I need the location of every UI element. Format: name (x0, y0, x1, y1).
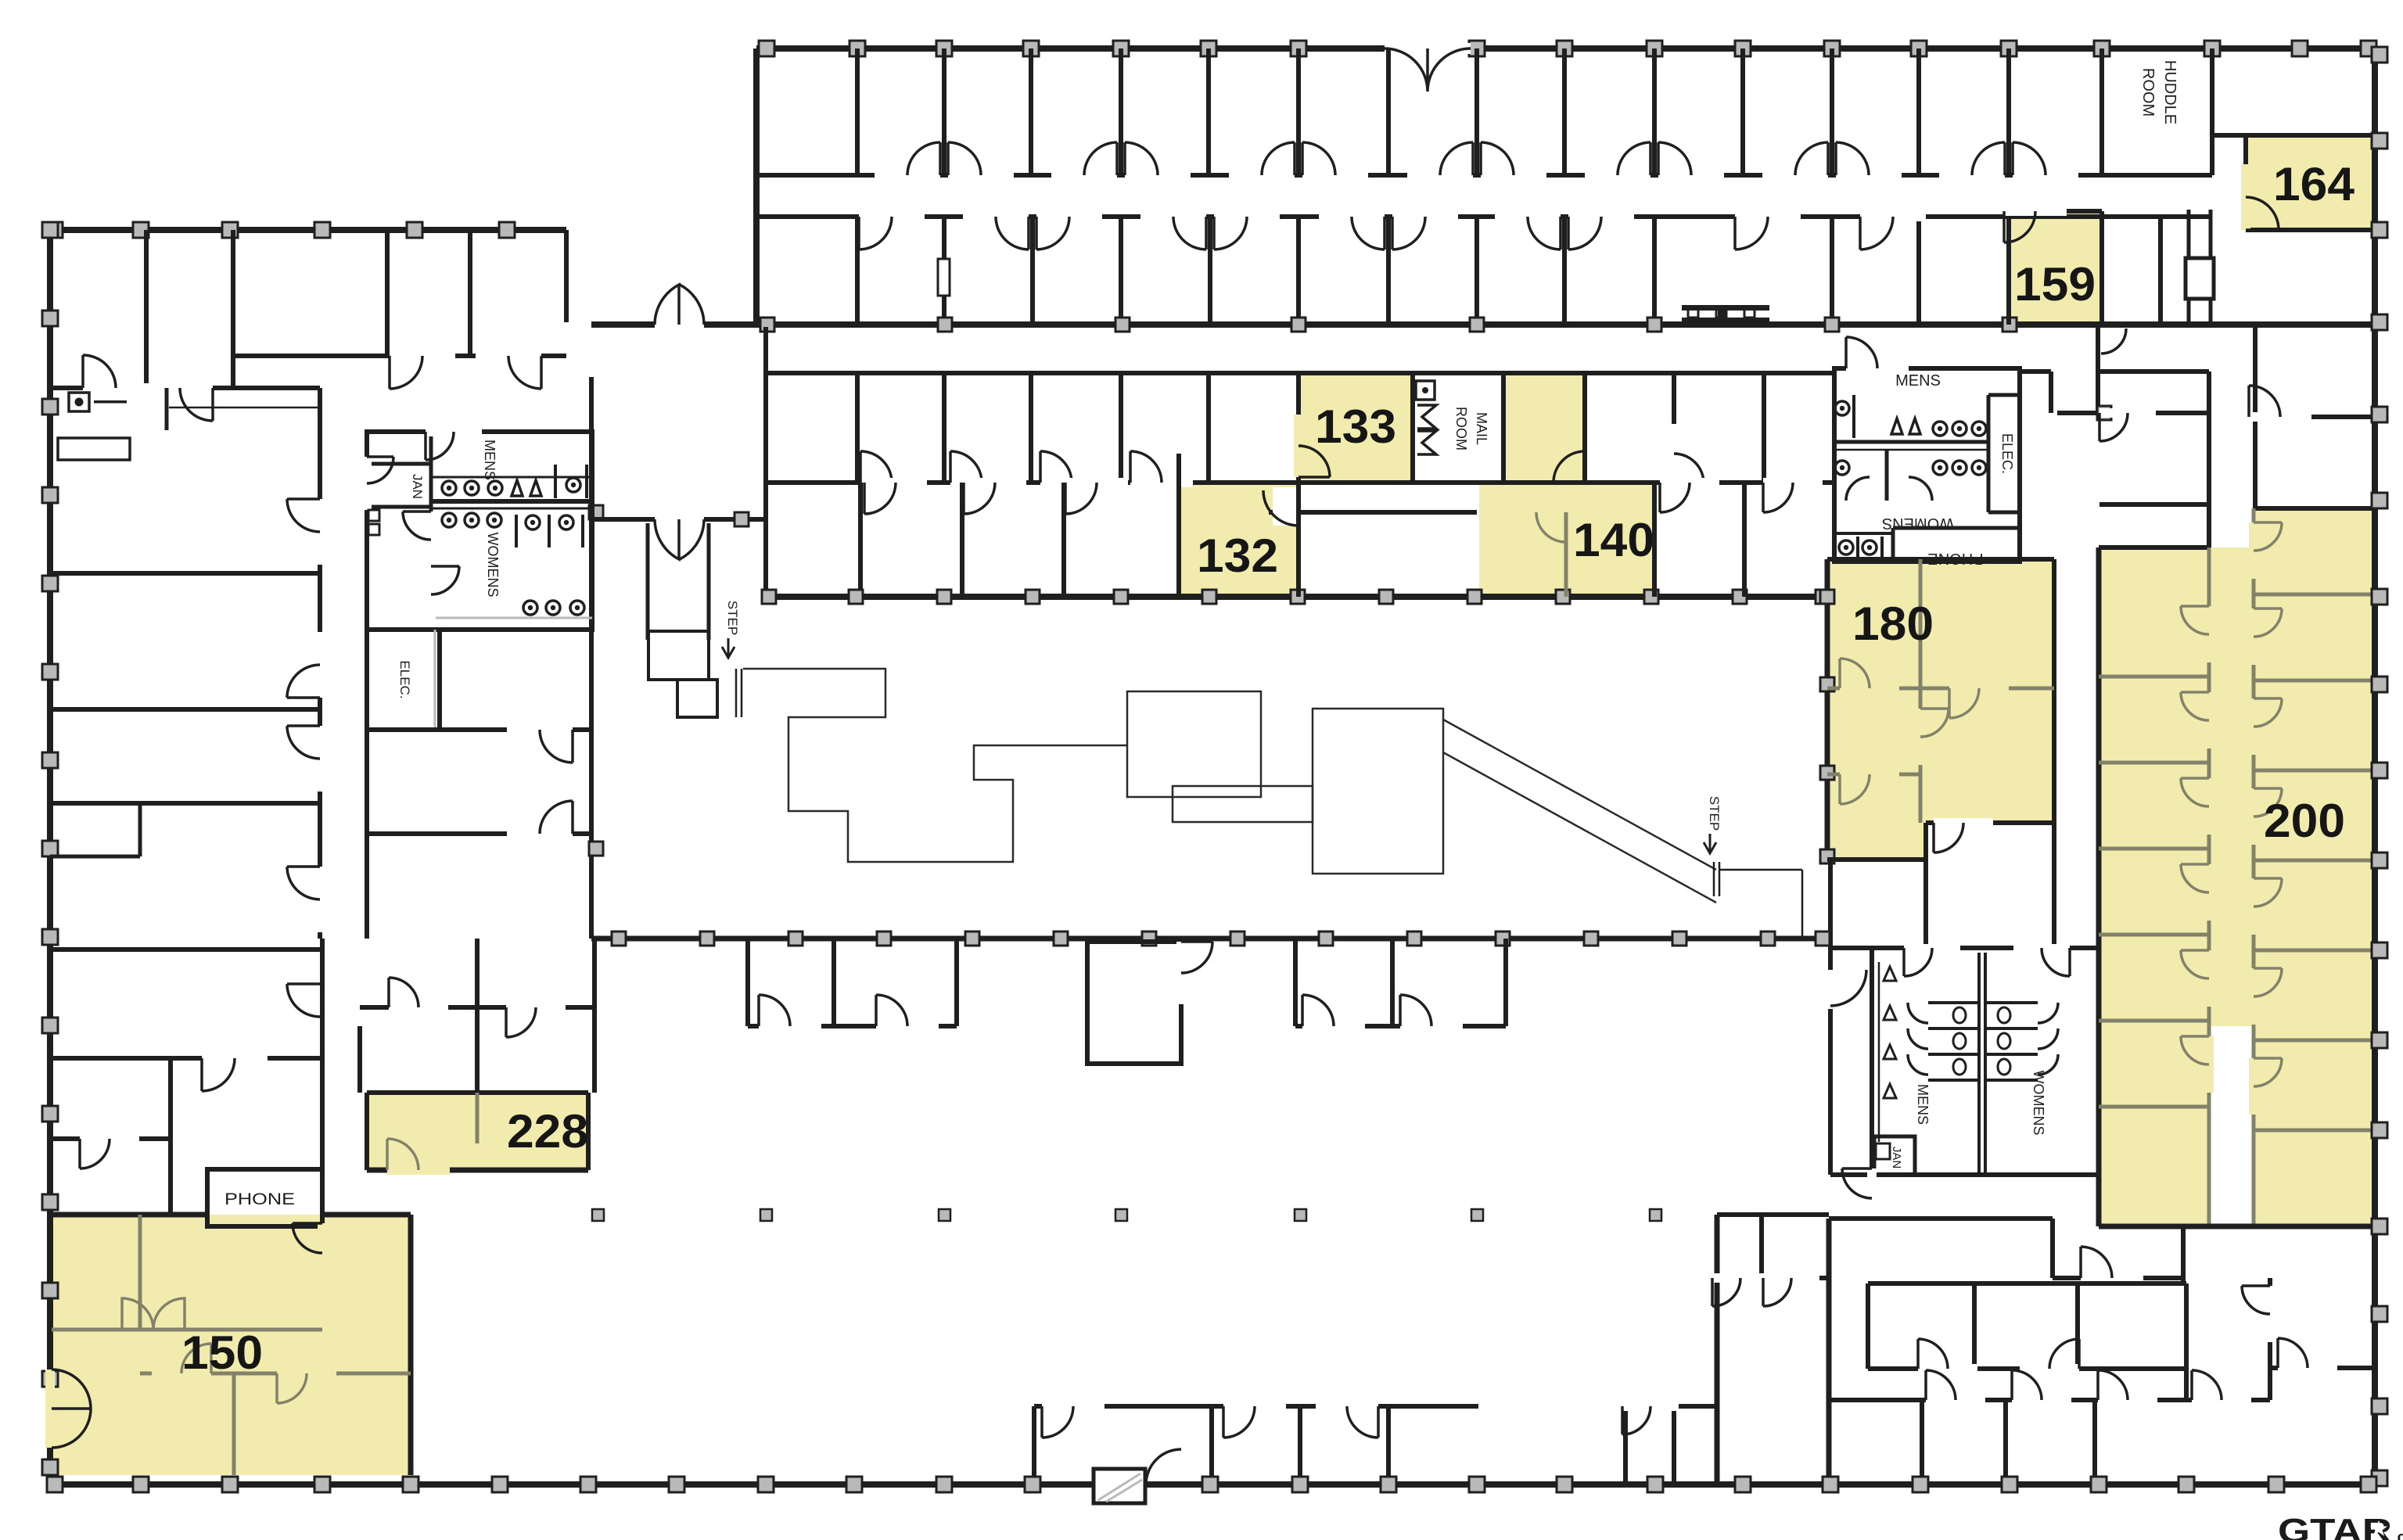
svg-text:STEP: STEP (725, 601, 740, 635)
svg-text:228: 228 (507, 1105, 588, 1158)
svg-text:164: 164 (2273, 158, 2355, 210)
svg-text:ROOM: ROOM (1453, 407, 1469, 451)
svg-text:PHONE: PHONE (224, 1190, 295, 1208)
svg-text:150: 150 (181, 1326, 263, 1379)
svg-text:ROOM: ROOM (2139, 68, 2157, 117)
svg-text:MAIL: MAIL (1474, 412, 1489, 445)
svg-text:JAN: JAN (1890, 1147, 1903, 1168)
svg-text:.com: .com (2393, 1529, 2403, 1540)
svg-text:ELEC.: ELEC. (1999, 433, 2015, 474)
svg-text:WOMENS: WOMENS (485, 533, 501, 598)
svg-text:STEP: STEP (1707, 796, 1722, 831)
svg-text:MENS: MENS (482, 440, 497, 480)
svg-text:HUDDLE: HUDDLE (2161, 60, 2179, 124)
svg-text:159: 159 (2014, 258, 2096, 311)
svg-text:133: 133 (1315, 400, 1396, 453)
svg-text:MENS: MENS (1895, 372, 1941, 389)
svg-text:MENS: MENS (1915, 1084, 1931, 1125)
svg-text:WOMENS: WOMENS (2031, 1071, 2046, 1136)
svg-text:200: 200 (2264, 795, 2345, 847)
svg-text:ELEC.: ELEC. (397, 660, 412, 698)
svg-text:132: 132 (1197, 529, 1278, 582)
svg-text:140: 140 (1573, 514, 1654, 566)
svg-text:JAN: JAN (410, 474, 425, 499)
svg-text:180: 180 (1852, 598, 1934, 650)
svg-text:GTAR: GTAR (2278, 1512, 2392, 1540)
